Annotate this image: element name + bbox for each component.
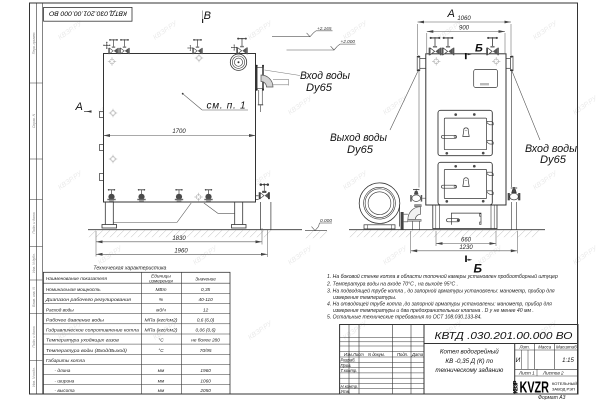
svg-text:В: В bbox=[204, 10, 211, 22]
svg-text:мм: мм bbox=[158, 368, 165, 373]
svg-text:КВЗР.РУ: КВЗР.РУ bbox=[572, 94, 600, 116]
svg-text:1060: 1060 bbox=[200, 378, 211, 383]
svg-text:%: % bbox=[159, 297, 163, 302]
svg-text:Разраб.: Разраб. bbox=[341, 358, 356, 363]
svg-text:МВт: МВт bbox=[156, 287, 167, 292]
svg-text:КВ -0,35 Д (К) по: КВ -0,35 Д (К) по bbox=[445, 358, 493, 365]
svg-text:измерения: измерения bbox=[149, 279, 173, 284]
svg-text:см. п. 1: см. п. 1 bbox=[207, 101, 246, 112]
svg-text:Расход воды: Расход воды bbox=[46, 307, 74, 312]
svg-text:1:15: 1:15 bbox=[562, 358, 574, 364]
svg-text:1. На боковой стенке котла в: 1. На боковой стенке котла в области топ… bbox=[327, 273, 558, 280]
svg-text:Номинальная мощность: Номинальная мощность bbox=[46, 287, 101, 292]
svg-text:КВЗР.РУ: КВЗР.РУ bbox=[532, 19, 560, 41]
svg-text:Котел водогрейный: Котел водогрейный bbox=[440, 349, 499, 356]
svg-text:12: 12 bbox=[203, 307, 209, 312]
svg-text:Гидравлическое сопротивление к: Гидравлическое сопротивление котла bbox=[46, 328, 139, 333]
svg-text:КВТД .030.201.00.000 ВО: КВТД .030.201.00.000 ВО bbox=[435, 330, 573, 342]
svg-text:Габариты котла: Габариты котла bbox=[46, 358, 85, 363]
svg-text:1960: 1960 bbox=[174, 248, 188, 254]
svg-text:Подп. и дата: Подп. и дата bbox=[32, 326, 36, 347]
svg-text:КВЗР.РУ: КВЗР.РУ bbox=[247, 19, 275, 41]
svg-text:Изм.Лист: Изм.Лист bbox=[344, 352, 364, 357]
svg-text:- ширина: - ширина bbox=[55, 378, 75, 383]
svg-text:Лит.: Лит. bbox=[519, 345, 530, 350]
svg-text:КВЗР.РУ: КВЗР.РУ bbox=[342, 319, 370, 341]
svg-text:Dy65: Dy65 bbox=[347, 144, 374, 156]
svg-text:ЗАВОД РЭП: ЗАВОД РЭП bbox=[552, 387, 575, 392]
svg-text:Перв. примен.: Перв. примен. bbox=[32, 32, 36, 55]
svg-text:KVZR: KVZR bbox=[520, 380, 550, 397]
svg-text:измерения температуры.: измерения температуры. bbox=[333, 295, 396, 301]
svg-text:Дата: Дата bbox=[411, 352, 424, 357]
svg-text:КВЗР.РУ: КВЗР.РУ bbox=[572, 244, 600, 266]
svg-text:КВЗР.РУ: КВЗР.РУ bbox=[287, 94, 315, 116]
svg-text:м3/ч: м3/ч bbox=[156, 307, 166, 312]
svg-text:Подп. и дата: Подп. и дата bbox=[32, 212, 36, 233]
svg-text:Рабочее давление воды: Рабочее давление воды bbox=[46, 317, 105, 322]
svg-text:70/95: 70/95 bbox=[200, 348, 212, 353]
svg-text:0,06 (0,6): 0,06 (0,6) bbox=[196, 328, 217, 333]
svg-text:+2.165: +2.165 bbox=[317, 26, 332, 32]
svg-text:Значение: Значение bbox=[195, 277, 216, 282]
svg-text:КВЗР.РУ: КВЗР.РУ bbox=[382, 244, 410, 266]
svg-text:КВЗР.РУ: КВЗР.РУ bbox=[287, 244, 315, 266]
svg-text:40-110: 40-110 bbox=[198, 297, 213, 302]
svg-text:N докум.: N докум. bbox=[368, 352, 385, 357]
svg-text:0,6 (6,0): 0,6 (6,0) bbox=[197, 317, 215, 322]
svg-text:Диапазон рабочего регулировани: Диапазон рабочего регулирования bbox=[45, 297, 132, 302]
svg-text:МПа (кгс/см2): МПа (кгс/см2) bbox=[145, 328, 178, 333]
svg-text:Инв. N подл.: Инв. N подл. bbox=[32, 367, 36, 387]
svg-text:Подп.: Подп. bbox=[397, 352, 408, 357]
svg-text:°С: °С bbox=[158, 338, 164, 343]
svg-text:КВЗР.РУ: КВЗР.РУ bbox=[247, 319, 275, 341]
svg-text:0,35: 0,35 bbox=[201, 287, 211, 292]
svg-text:3. На подводящей трубе котла: 3. На подводящей трубе котла , до запорн… bbox=[327, 287, 555, 294]
svg-text:1700: 1700 bbox=[172, 129, 186, 135]
svg-text:Лист 1: Лист 1 bbox=[518, 371, 535, 376]
svg-text:И: И bbox=[516, 357, 521, 364]
svg-text:техническому заданию: техническому заданию bbox=[435, 367, 503, 374]
svg-text:Выход воды: Выход воды bbox=[330, 132, 387, 144]
svg-text:КВЗР.РУ: КВЗР.РУ bbox=[57, 19, 85, 41]
svg-text:Утв.: Утв. bbox=[341, 389, 351, 394]
svg-text:Т.контр.: Т.контр. bbox=[341, 368, 358, 373]
svg-text:КВЗР.РУ: КВЗР.РУ bbox=[532, 169, 560, 191]
svg-text:+2.000: +2.000 bbox=[341, 39, 356, 45]
svg-text:мм: мм bbox=[158, 388, 165, 393]
svg-text:1830: 1830 bbox=[172, 236, 186, 242]
svg-text:4. На отводящей трубе котла ,: 4. На отводящей трубе котла ,до запорной… bbox=[327, 301, 552, 308]
svg-text:2050: 2050 bbox=[199, 388, 211, 393]
svg-text:Масштаб: Масштаб bbox=[556, 345, 577, 350]
svg-text:измерения температуры и два пр: измерения температуры и два предохраните… bbox=[333, 308, 534, 314]
svg-text:Справ. N: Справ. N bbox=[32, 113, 36, 128]
svg-text:Листов 2: Листов 2 bbox=[542, 371, 564, 376]
svg-text:не более 280: не более 280 bbox=[191, 338, 220, 343]
svg-text:- высота: - высота bbox=[55, 388, 76, 393]
svg-text:2. Температура воды на входе: 2. Температура воды на входе 70°С , на в… bbox=[326, 282, 458, 288]
svg-text:Температура воды (Вход/Выход): Температура воды (Вход/Выход) bbox=[46, 348, 127, 353]
svg-text:Наименование показателя: Наименование показателя bbox=[46, 276, 108, 281]
svg-text:Техническая характеристика: Техническая характеристика bbox=[93, 266, 166, 272]
svg-text:900: 900 bbox=[459, 26, 470, 32]
svg-text:Температура уходящих газов: Температура уходящих газов bbox=[46, 338, 120, 343]
svg-text:КОТЕЛЬНЫЙ: КОТЕЛЬНЫЙ bbox=[552, 381, 577, 386]
svg-text:А: А bbox=[75, 101, 83, 113]
svg-text:КВЗР: КВЗР bbox=[514, 381, 520, 394]
svg-text:Инв. N дубл.: Инв. N дубл. bbox=[32, 253, 36, 273]
svg-text:°С: °С bbox=[158, 348, 164, 353]
svg-text:Масса: Масса bbox=[538, 345, 552, 350]
svg-text:КВЗР.РУ: КВЗР.РУ bbox=[342, 19, 370, 41]
svg-text:Dy65: Dy65 bbox=[540, 154, 567, 166]
svg-text:1060: 1060 bbox=[457, 16, 471, 22]
svg-text:0.000: 0.000 bbox=[320, 218, 332, 224]
svg-text:КВТД.030.201.00.000 ВО: КВТД.030.201.00.000 ВО bbox=[49, 10, 127, 16]
svg-text:1960: 1960 bbox=[200, 368, 211, 373]
svg-text:Dy65: Dy65 bbox=[306, 82, 333, 94]
svg-text:Вход воды: Вход воды bbox=[300, 70, 350, 82]
svg-text:Пров.: Пров. bbox=[341, 363, 352, 368]
svg-text:А: А bbox=[447, 8, 455, 20]
svg-text:КВЗР.РУ: КВЗР.РУ bbox=[192, 244, 220, 266]
svg-text:- длина: - длина bbox=[55, 368, 71, 373]
svg-text:Б: Б bbox=[475, 43, 483, 55]
svg-text:1230: 1230 bbox=[459, 245, 473, 251]
svg-text:660: 660 bbox=[461, 238, 472, 244]
svg-text:5. Остальные технические треб: 5. Остальные технические требования по О… bbox=[327, 314, 482, 320]
svg-text:КВЗР.РУ: КВЗР.РУ bbox=[152, 19, 180, 41]
svg-text:МПа (кгс/см2): МПа (кгс/см2) bbox=[145, 317, 178, 322]
svg-text:мм: мм bbox=[158, 378, 165, 383]
svg-text:Н.контр.: Н.контр. bbox=[341, 384, 359, 389]
svg-text:КВЗР.РУ: КВЗР.РУ bbox=[57, 169, 85, 191]
svg-text:Формат А3: Формат А3 bbox=[538, 395, 566, 400]
svg-text:КВЗР.РУ: КВЗР.РУ bbox=[97, 244, 125, 266]
svg-text:Взам. инв. N: Взам. инв. N bbox=[32, 287, 36, 307]
